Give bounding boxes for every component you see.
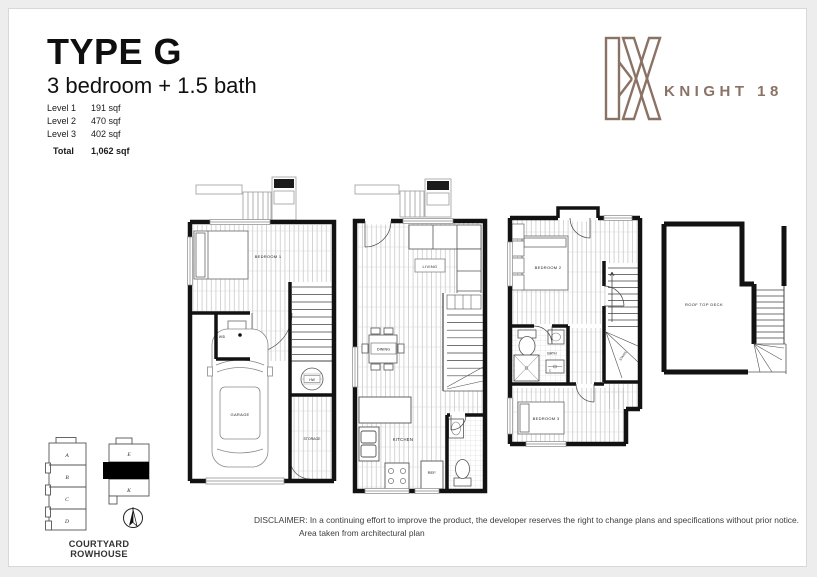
page-title: TYPE G <box>47 31 182 73</box>
floor-plan-level-3: BEDROOM 2 BATH C BEDROOM 3 STAIRS <box>506 206 644 458</box>
room-label-hw: HW <box>309 378 315 382</box>
powder-room <box>447 417 483 489</box>
room-label-bedroom1: BEDROOM 1 <box>255 254 282 259</box>
highlighted-unit-block <box>103 462 149 479</box>
room-label-ref: REF. <box>428 470 437 475</box>
room-label-garage: GARAGE <box>231 412 250 417</box>
unit-letter: K <box>126 488 131 494</box>
area-label: Level 1 <box>47 103 91 113</box>
stairs <box>443 293 483 391</box>
room-label-dining: DINING <box>377 348 390 352</box>
walls <box>664 224 784 372</box>
knight18-logo-icon <box>601 35 663 123</box>
room-label-bath: BATH <box>547 352 557 356</box>
room-label-kitchen: KITCHEN <box>393 437 413 442</box>
room-label-bedroom3: BEDROOM 3 <box>533 416 560 421</box>
deck-detail <box>274 179 294 188</box>
room-label-bedroom2: BEDROOM 2 <box>535 265 562 270</box>
stairs <box>290 287 334 361</box>
bathroom <box>512 328 566 382</box>
area-value: 402 sqf <box>91 129 121 139</box>
room-label-storage: STORAGE <box>303 437 321 441</box>
keyplan-caption: COURTYARD ROWHOUSE <box>43 539 155 559</box>
deck-detail <box>427 181 449 190</box>
plan-sheet: TYPE G 3 bedroom + 1.5 bath Level 1 191 … <box>0 0 817 577</box>
area-label: Level 3 <box>47 129 91 139</box>
unit-letter: A <box>64 453 69 459</box>
area-value: 191 sqf <box>91 103 121 113</box>
refrigerator <box>421 461 443 489</box>
area-row: Level 1 191 sqf <box>47 101 130 114</box>
area-total-row: Total 1,062 sqf <box>47 144 130 157</box>
page: TYPE G 3 bedroom + 1.5 bath Level 1 191 … <box>8 8 807 567</box>
floor-plan-roof: ROOF TOP DECK <box>656 216 800 396</box>
disclaimer-line2: Area taken from architectural plan <box>299 528 425 538</box>
room-label-wd: W/D <box>219 335 226 339</box>
area-table: Level 1 191 sqf Level 2 470 sqf Level 3 … <box>47 101 130 157</box>
unit-letter: C <box>65 497 69 503</box>
area-row: Level 2 470 sqf <box>47 114 130 127</box>
page-subtitle: 3 bedroom + 1.5 bath <box>47 73 257 99</box>
area-value: 470 sqf <box>91 116 121 126</box>
area-row: Level 3 402 sqf <box>47 127 130 140</box>
room-label-living: LIVING <box>423 264 438 269</box>
area-total-value: 1,062 sqf <box>91 146 130 156</box>
floor-plan-level-2: LIVING DINING KITCHEN REF. <box>351 161 489 507</box>
bed <box>194 231 248 279</box>
area-total-label: Total <box>47 146 91 156</box>
north-compass-icon <box>124 507 143 528</box>
floor-plan-level-1: BEDROOM 1 W/D HW GARAGE STORAGE <box>186 165 338 509</box>
unit-letter: D <box>64 519 69 525</box>
unit-letter: E <box>126 452 131 458</box>
brand-name: KNIGHT 18 <box>664 83 783 100</box>
disclaimer-line1: DISCLAIMER: In a continuing effort to im… <box>254 515 799 525</box>
stairs <box>606 263 638 380</box>
room-label-roof-deck: ROOF TOP DECK <box>685 302 723 307</box>
area-label: Level 2 <box>47 116 91 126</box>
bed <box>522 236 568 290</box>
site-key-plan: A B C D E K <box>45 437 151 539</box>
